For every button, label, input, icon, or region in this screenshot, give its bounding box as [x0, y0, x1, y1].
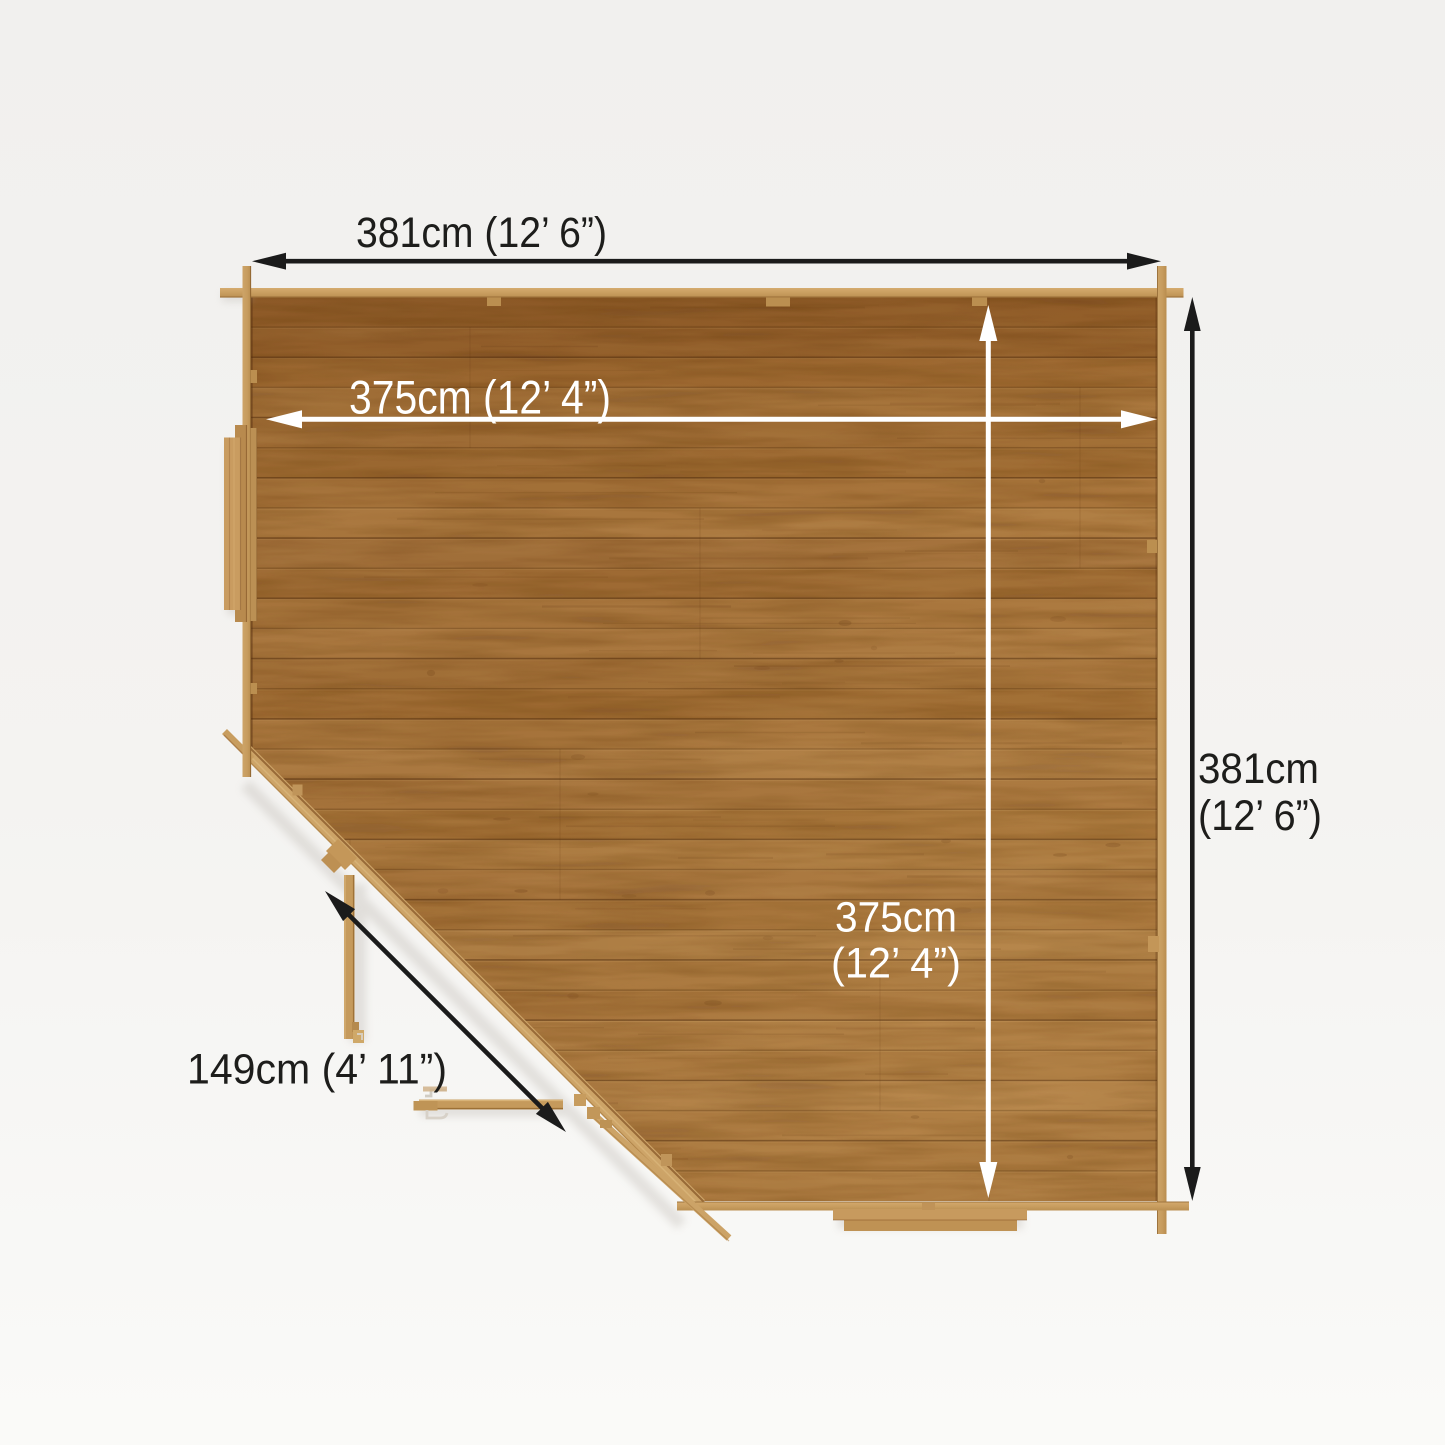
svg-text:(12’ 4”): (12’ 4”): [831, 940, 961, 988]
svg-text:375cm: 375cm: [835, 894, 957, 942]
svg-text:149cm (4’ 11”): 149cm (4’ 11”): [187, 1046, 447, 1094]
svg-text:375cm (12’ 4”): 375cm (12’ 4”): [349, 371, 611, 424]
svg-text:381cm (12’ 6”): 381cm (12’ 6”): [356, 209, 607, 257]
svg-text:381cm: 381cm: [1198, 745, 1319, 793]
svg-text:(12’ 6”): (12’ 6”): [1198, 792, 1322, 840]
